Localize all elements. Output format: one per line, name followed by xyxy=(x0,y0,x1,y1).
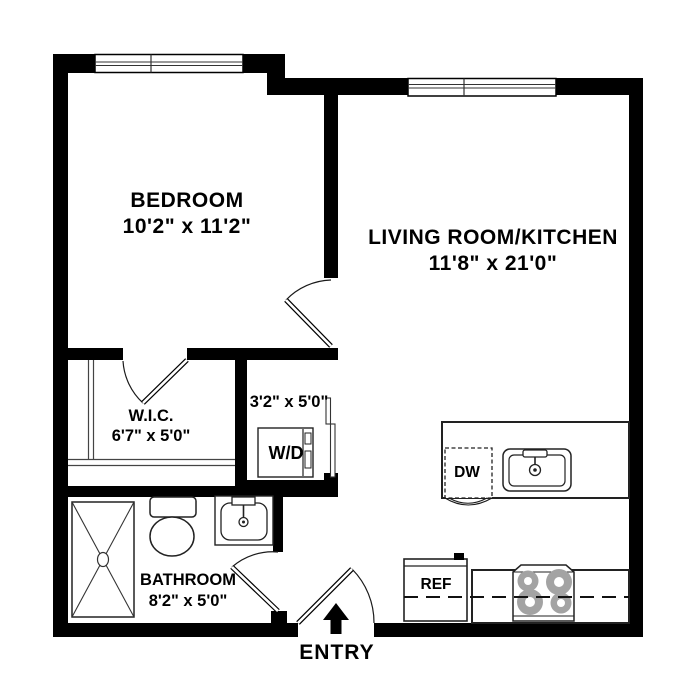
refrigerator-handle xyxy=(454,553,464,560)
vanity-drain-dot xyxy=(242,521,245,524)
washer-dryer-control xyxy=(305,433,311,444)
burner-center xyxy=(524,577,532,585)
bathroom-label: BATHROOM xyxy=(140,571,236,589)
bedroom-dims: 10'2" x 11'2" xyxy=(123,215,252,238)
entry-label: ENTRY xyxy=(299,641,374,664)
wall-bedroom-living-upper xyxy=(324,95,338,278)
shower xyxy=(72,502,134,617)
bedroom-window-frame xyxy=(95,55,243,73)
wic-label: W.I.C. xyxy=(129,407,174,425)
refrigerator-label: REF xyxy=(421,576,452,593)
kitchen-sink-faucet xyxy=(523,450,547,457)
living-label: LIVING ROOM/KITCHEN xyxy=(368,226,618,249)
wic-dims: 6'7" x 5'0" xyxy=(112,427,191,445)
bathroom-dims: 8'2" x 5'0" xyxy=(149,592,228,610)
living-dims: 11'8" x 21'0" xyxy=(429,252,558,275)
wall-exterior-right xyxy=(629,78,643,637)
living-window-frame xyxy=(408,79,556,97)
wall-bedroom-wic-right xyxy=(187,348,338,360)
vanity-faucet xyxy=(232,497,255,505)
burner-center xyxy=(525,597,535,607)
laundry-dims: 3'2" x 5'0" xyxy=(250,393,329,411)
wall-bathroom-sink-stub xyxy=(273,486,283,552)
wall-bedroom-wic-left xyxy=(53,348,123,360)
floor-plan: BEDROOM 10'2" x 11'2" LIVING ROOM/KITCHE… xyxy=(0,0,697,697)
toilet-bowl xyxy=(150,517,194,556)
toilet-tank xyxy=(150,497,196,517)
wall-exterior-bottom-right xyxy=(374,623,643,637)
bedroom-window xyxy=(95,55,243,73)
dishwasher-label: DW xyxy=(454,464,480,481)
wall-exterior-left xyxy=(53,54,68,637)
bedroom-label: BEDROOM xyxy=(130,189,243,212)
burner-center xyxy=(554,577,564,587)
wall-exterior-bottom-left xyxy=(53,623,298,637)
stove xyxy=(513,565,574,621)
living-window xyxy=(408,79,556,97)
kitchen-sink xyxy=(503,449,571,491)
washer-dryer-label: W/D xyxy=(269,443,304,463)
laundry-sliding-panel xyxy=(331,424,336,477)
burner-center xyxy=(557,599,565,607)
wall-wic-laundry xyxy=(235,360,247,497)
wall-bathroom-door-stub xyxy=(271,611,287,623)
kitchen-sink-drain-dot xyxy=(533,468,537,472)
shower-drain xyxy=(98,553,109,567)
floor-plan-svg: BEDROOM 10'2" x 11'2" LIVING ROOM/KITCHE… xyxy=(0,0,697,697)
washer-dryer-control xyxy=(305,451,311,468)
toilet xyxy=(150,497,196,556)
bathroom-sink xyxy=(215,496,273,545)
